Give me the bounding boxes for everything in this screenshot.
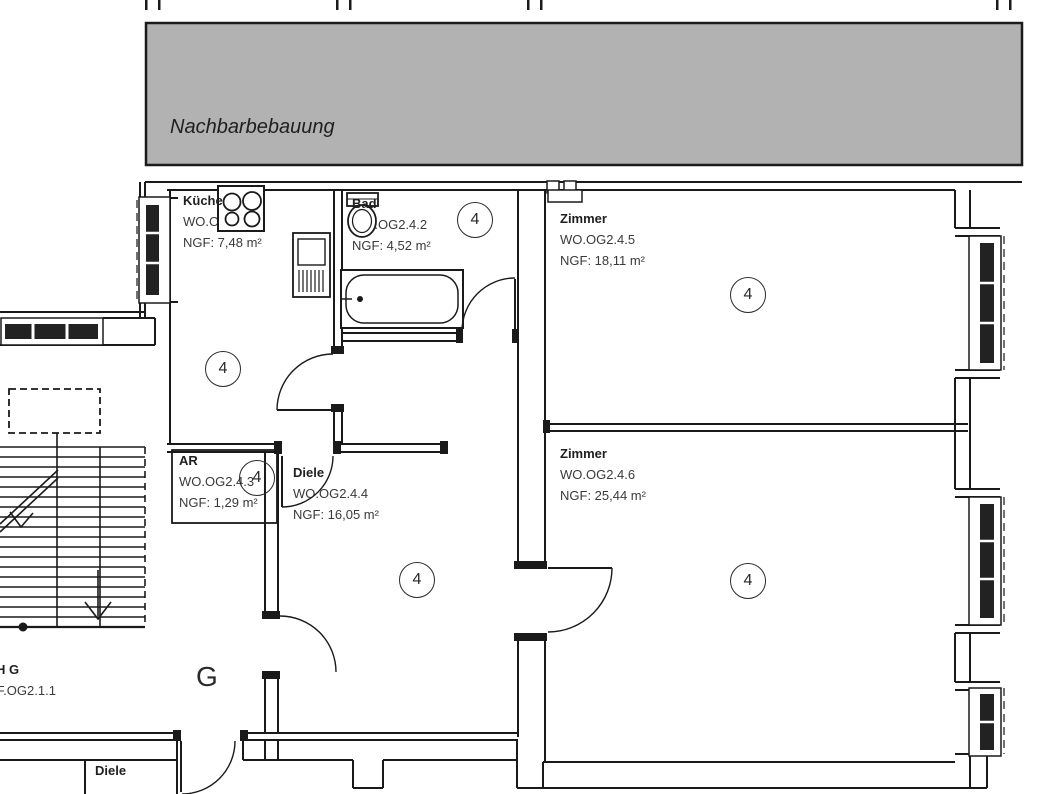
apartment-marker: 4 — [205, 351, 241, 387]
dimension-ticks — [145, 0, 1012, 10]
walls-layer — [0, 0, 1046, 794]
stair-hall-letter: G — [196, 661, 218, 693]
upper-flight-dashed-outline — [9, 389, 100, 433]
stair-hall-code: VF.OG2.1.1 — [0, 680, 56, 701]
room-name: Zimmer — [560, 208, 645, 229]
neighbor-building-band — [146, 23, 1022, 165]
floor-plan-canvas: Nachbarbebauung Küche WO.OG2.4.1 NGF: 7,… — [0, 0, 1046, 794]
walls — [0, 182, 1022, 794]
room-area: NGF: 7,48 m² — [183, 232, 262, 253]
room-name: Zimmer — [560, 443, 646, 464]
room-code: WO.OG2.4.4 — [293, 483, 379, 504]
room-label-diele: Diele WO.OG2.4.4 NGF: 16,05 m² — [293, 462, 379, 525]
room-name: Bad — [352, 193, 431, 214]
room-code: WO.OG2.4.5 — [560, 229, 645, 250]
neighbor-building-label: Nachbarbebauung — [170, 116, 335, 139]
room-code: WO.OG2.4.2 — [352, 214, 431, 235]
apartment-marker: 4 — [239, 460, 275, 496]
window-icon-right-2 — [969, 497, 1004, 625]
room-label-kueche: Küche WO.OG2.4.1 NGF: 7,48 m² — [183, 190, 262, 253]
stair-break-line — [0, 470, 58, 532]
window-icon-right-3 — [969, 688, 1004, 756]
door-apartment-entrance — [280, 616, 336, 672]
walk-line-start-dot — [19, 623, 28, 632]
room-name: Küche — [183, 190, 262, 211]
room-area: NGF: 4,52 m² — [352, 235, 431, 256]
apartment-marker: 4 — [399, 562, 435, 598]
room-label-zimmer-45: Zimmer WO.OG2.4.5 NGF: 18,11 m² — [560, 208, 645, 271]
window-icon-stairwell — [1, 318, 103, 345]
room-area: NGF: 18,11 m² — [560, 250, 645, 271]
room-code: WO.OG2.4.6 — [560, 464, 646, 485]
window-icon-right-1 — [969, 236, 1004, 370]
room-code: WO.OG2.4.1 — [183, 211, 262, 232]
door-swing-arcs — [181, 278, 612, 794]
stair-hall-name: TH G — [0, 659, 56, 680]
bathtub-icon — [341, 270, 463, 328]
flue-boxes-icon — [547, 181, 582, 202]
door-jambs — [173, 329, 550, 741]
walk-line-arrowhead — [10, 512, 33, 527]
radiator-icon — [293, 233, 330, 297]
apartment-marker: 4 — [730, 563, 766, 599]
door-stair-hall — [181, 741, 235, 794]
fixtures-layer — [0, 0, 1046, 794]
staircase — [0, 389, 145, 632]
window-icon-kitchen — [137, 197, 170, 303]
lower-room-label: Diele — [95, 763, 126, 778]
stair-hall-label: TH G VF.OG2.1.1 — [0, 659, 56, 701]
room-name: Diele — [293, 462, 379, 483]
door-zimmer-46 — [548, 568, 612, 632]
wall-pier — [548, 190, 582, 202]
room-area: NGF: 1,29 m² — [179, 492, 258, 513]
apartment-marker: 4 — [730, 277, 766, 313]
stair-direction-arrow — [85, 570, 111, 619]
door-kitchen — [277, 354, 333, 410]
apartment-marker: 4 — [457, 202, 493, 238]
room-label-zimmer-46: Zimmer WO.OG2.4.6 NGF: 25,44 m² — [560, 443, 646, 506]
room-area: NGF: 16,05 m² — [293, 504, 379, 525]
door-bad — [462, 278, 515, 331]
room-label-bad: Bad WO.OG2.4.2 NGF: 4,52 m² — [352, 193, 431, 256]
room-area: NGF: 25,44 m² — [560, 485, 646, 506]
